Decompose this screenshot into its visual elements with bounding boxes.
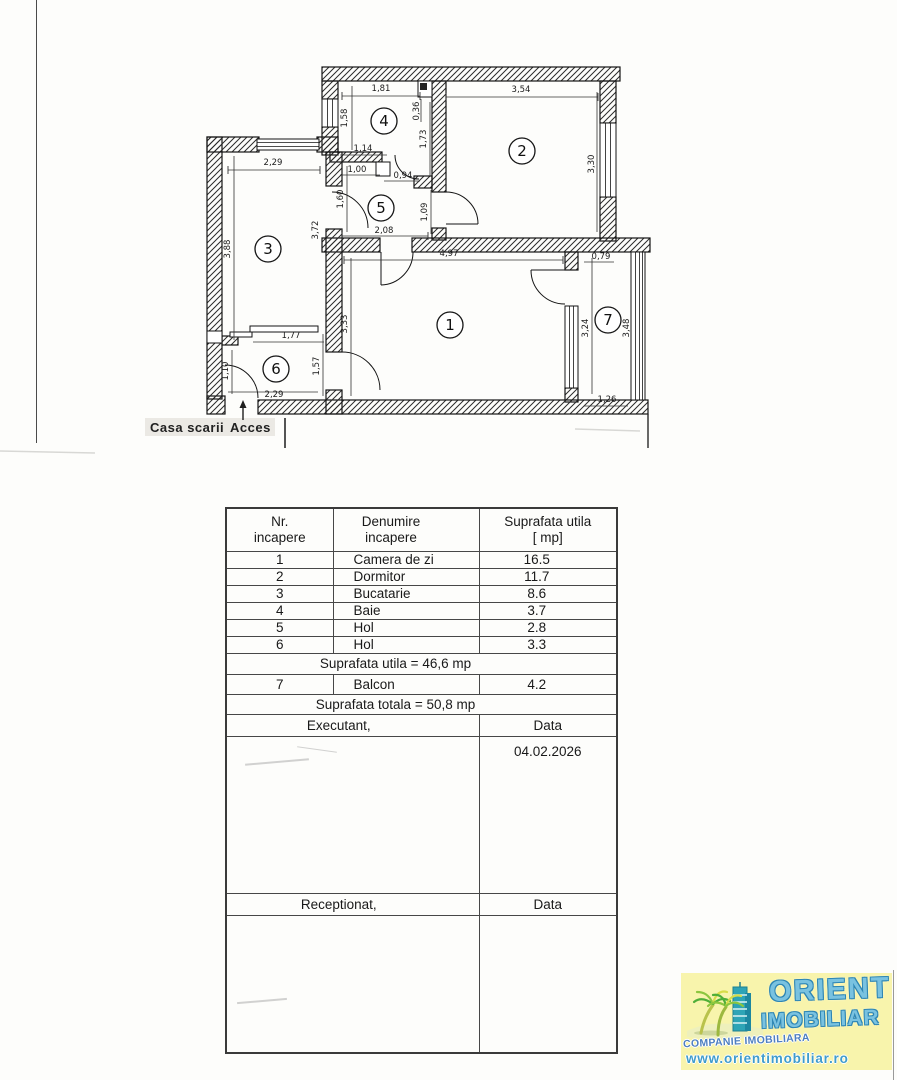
header-denumire: Denumireincapere — [333, 508, 479, 552]
cell-name: Hol — [333, 637, 479, 654]
dim-label: 1,14 — [354, 144, 373, 154]
room-number: 3 — [263, 240, 273, 258]
receptionat-label: Receptionat, — [226, 894, 479, 916]
dim-label: 0,36 — [412, 102, 422, 121]
cell-name: Camera de zi — [333, 552, 479, 569]
total-row: Suprafata totala = 50,8 mp — [226, 695, 617, 715]
dim-label: 2,08 — [375, 226, 394, 236]
cell-name: Balcon — [333, 675, 479, 695]
dim-label: 3,48 — [622, 319, 632, 338]
cell-area: 2.8 — [479, 620, 617, 637]
receptionat-data-label: Data — [479, 894, 617, 916]
receptionat-row: Receptionat, Data — [226, 894, 617, 916]
cell-area: 16.5 — [479, 552, 617, 569]
dim-label: 1,60 — [336, 190, 346, 209]
logo-graphic — [685, 979, 765, 1041]
dim-label: 2,29 — [264, 158, 283, 168]
room-number: 2 — [517, 142, 527, 160]
room-label-6: 6 — [263, 356, 289, 382]
brand-name-top: ORIENT — [768, 972, 891, 1009]
room-label-5: 5 — [368, 195, 394, 221]
receptionat-date-cell — [479, 916, 617, 1054]
acces-arrow-icon — [240, 400, 247, 408]
room-number: 1 — [445, 316, 455, 334]
cell-area: 3.7 — [479, 603, 617, 620]
dim-label: 4,97 — [440, 249, 459, 259]
cell-nr: 5 — [226, 620, 333, 637]
cell-name: Baie — [333, 603, 479, 620]
bottom-empty-row — [226, 916, 617, 1054]
scan-edge-artifact — [893, 970, 894, 1080]
dim-label: 2,29 — [265, 390, 284, 400]
receptionat-signature-cell — [226, 916, 479, 1054]
cell-nr: 4 — [226, 603, 333, 620]
company-logo: ORIENT IMOBILIAR COMPANIE IMOBILIARA www… — [681, 973, 892, 1070]
website-url: www.orientimobiliar.ro — [686, 1051, 849, 1066]
cell-nr: 1 — [226, 552, 333, 569]
room-label-1: 1 — [437, 312, 463, 338]
cell-name: Dormitor — [333, 569, 479, 586]
cell-name: Hol — [333, 620, 479, 637]
scan-smudge — [575, 429, 640, 431]
dim-label: 1,77 — [282, 331, 301, 341]
room-number: 5 — [376, 199, 386, 217]
room-number: 7 — [603, 311, 613, 329]
dim-label: 3,24 — [581, 319, 591, 338]
dim-label: 3,88 — [223, 240, 233, 259]
header-nr-incapere: Nr.incapere — [226, 508, 333, 552]
dim-label: 3,72 — [311, 221, 321, 240]
subtotal-utila: Suprafata utila = 46,6 mp — [226, 654, 617, 675]
table-row: 4 Baie 3.7 — [226, 603, 617, 620]
scan-smudge — [0, 451, 95, 453]
dim-label: 3,30 — [587, 155, 597, 174]
floor-plan: 1,81 3,54 1,58 0,36 1,73 3,30 2,29 1,14 … — [0, 0, 897, 470]
dim-label: 1,58 — [340, 109, 350, 128]
header-suprafata: Suprafata utila[ mp] — [479, 508, 617, 552]
total-suprafata: Suprafata totala = 50,8 mp — [226, 695, 617, 715]
room-label-7: 7 — [595, 307, 621, 333]
cell-nr: 7 — [226, 675, 333, 695]
table-row: 6 Hol 3.3 — [226, 637, 617, 654]
room-label-4: 4 — [371, 108, 397, 134]
dim-label: 0,94 — [394, 171, 413, 181]
executant-label: Executant, — [226, 715, 479, 737]
room-label-2: 2 — [509, 138, 535, 164]
dim-label: 1,73 — [419, 130, 429, 149]
casa-scarii-label: Casa scarii — [150, 420, 224, 435]
cell-name: Bucatarie — [333, 586, 479, 603]
cell-nr: 6 — [226, 637, 333, 654]
dim-label: 1,09 — [420, 203, 430, 222]
dim-label: 3,54 — [512, 85, 531, 95]
dim-label: 1,81 — [372, 84, 391, 94]
dim-label: 1,10 — [221, 362, 231, 381]
room-number: 6 — [271, 360, 281, 378]
brand-name-bottom: IMOBILIAR — [761, 1006, 880, 1034]
executant-signature-cell — [226, 737, 479, 894]
cell-nr: 2 — [226, 569, 333, 586]
dim-label: 1,00 — [348, 165, 367, 175]
cell-area: 4.2 — [479, 675, 617, 695]
table-row: 1 Camera de zi 16.5 — [226, 552, 617, 569]
cell-area: 3.3 — [479, 637, 617, 654]
executant-data-label: Data — [479, 715, 617, 737]
table-row: 3 Bucatarie 8.6 — [226, 586, 617, 603]
dim-label: 1,57 — [312, 357, 322, 376]
date-cell: 04.02.2026 — [479, 737, 617, 894]
subtotal-row: Suprafata utila = 46,6 mp — [226, 654, 617, 675]
counter-line — [230, 332, 252, 337]
table-row: 2 Dormitor 11.7 — [226, 569, 617, 586]
cell-nr: 3 — [226, 586, 333, 603]
table-row: 5 Hol 2.8 — [226, 620, 617, 637]
signature-area-row: 04.02.2026 — [226, 737, 617, 894]
table-row-balcon: 7 Balcon 4.2 — [226, 675, 617, 695]
table-header-row: Nr.incapere Denumireincapere Suprafata u… — [226, 508, 617, 552]
cell-area: 8.6 — [479, 586, 617, 603]
wall-voids — [207, 81, 432, 343]
room-area-table: Nr.incapere Denumireincapere Suprafata u… — [225, 507, 616, 1054]
room-number: 4 — [379, 112, 389, 130]
room-label-3: 3 — [255, 236, 281, 262]
acces-label: Acces — [230, 420, 271, 435]
dim-label: 1,26 — [598, 395, 617, 405]
cell-area: 11.7 — [479, 569, 617, 586]
dim-label: 0,79 — [592, 252, 611, 262]
dim-label: 3,33 — [340, 315, 350, 334]
executant-row: Executant, Data — [226, 715, 617, 737]
